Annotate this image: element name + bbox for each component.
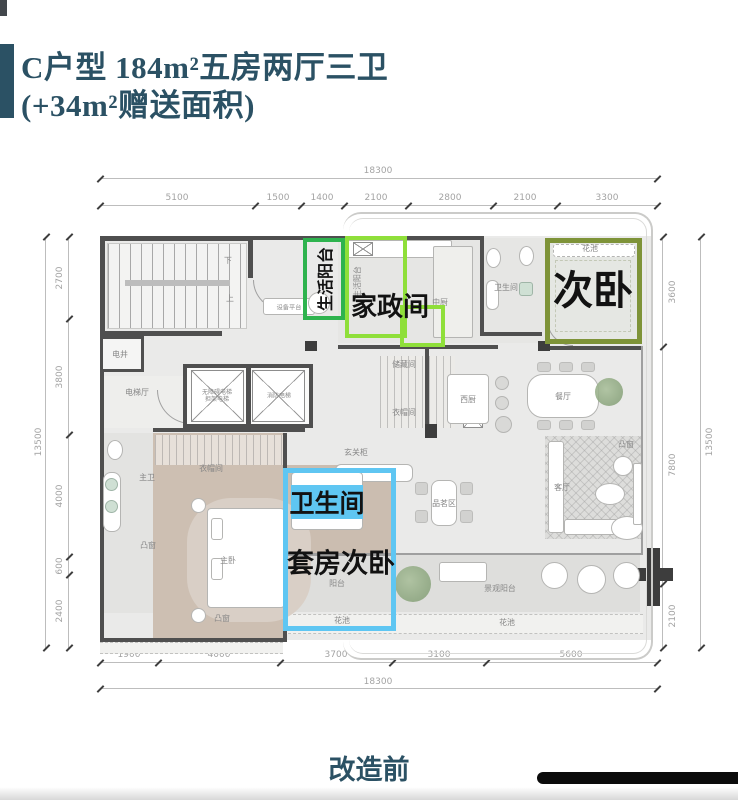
dim-tick [97,202,105,210]
dim-value: 5100 [166,193,189,203]
dim-tick [654,175,662,183]
wall [100,236,252,241]
dim-line-left-segments: 2700 3800 4000 600 2400 [68,237,69,648]
floor-plan: 无障碍电梯 担架电梯 消防电梯 设备平台 [95,228,657,648]
room-label-master-bath: 主卫 [139,471,155,483]
room-label-living-room: 客厅 [554,481,570,493]
room-label-master-closet: 衣帽间 [199,462,223,474]
room-label-electrical-shaft: 电井 [112,348,128,360]
dim-value: 1500 [267,193,290,203]
dim-tick [66,315,74,323]
dim-tick [66,571,74,579]
dim-tick [660,233,668,241]
dim-value: 13500 [34,428,44,457]
dim-tick [341,202,349,210]
annotation-suite-bathroom: 卫生间 [289,484,364,520]
dim-line-bottom-total: 18300 [100,688,657,689]
dim-value: 3700 [325,650,348,660]
dim-line-bottom-segments: 1900 4000 3700 3100 5600 [100,662,657,663]
dim-tick [389,659,397,667]
redaction-bar [537,772,738,784]
room-label-bay-window-bottom: 凸窗 [214,612,230,624]
room-label-west-kitchen: 西厨 [460,393,476,405]
dim-tick [554,202,562,210]
dim-tick [698,644,706,652]
dim-tick [252,202,260,210]
room-label-tea-area: 品茗区 [432,497,456,509]
flower-bed-strip [100,642,283,654]
wall [246,368,251,424]
dim-value: 2100 [514,193,537,203]
room-label-stairs-up: 上 [226,292,234,304]
dim-tick [97,175,105,183]
annotation-housekeeping-room: 家政间 [351,287,429,324]
page-title-line2: (+34m²赠送面积) [21,80,255,125]
dim-tick [654,685,662,693]
room-label-entry-cabinet: 玄关柜 [344,446,368,458]
dim-tick [66,431,74,439]
dim-value: 18300 [364,166,393,176]
dim-value: 2700 [55,267,65,290]
dim-tick [654,202,662,210]
dim-tick [66,644,74,652]
room-label-dining: 餐厅 [555,390,571,402]
annotation-secondary-bedroom: 次卧 [553,258,633,316]
room-label-view-balcony: 景观阳台 [484,582,516,594]
dim-value: 4000 [55,485,65,508]
room-label-storage: 储藏间 [392,358,416,370]
dim-tick [405,202,413,210]
dim-line-right-total: 13500 [700,237,701,648]
dim-tick [483,659,491,667]
equipment-platform-label: 设备平台 [277,302,302,311]
annotation-suite-bedroom: 套房次卧 [287,542,395,581]
title-accent-bar [0,44,14,118]
wall [100,236,105,334]
dim-line-top-segments: 5100 1500 1400 2100 2800 2100 3300 [100,205,657,206]
room-label-master-bedroom: 主卧 [220,554,236,566]
nightstand [191,608,206,623]
room-label-cloakroom: 衣帽间 [392,406,416,418]
page: C户型 184m²五房两厅三卫 (+34m²赠送面积) 18300 5100 1… [0,0,738,800]
dim-value: 13500 [705,428,715,457]
dim-tick [43,233,51,241]
dim-tick [654,659,662,667]
column [305,341,317,351]
dim-tick [660,644,668,652]
elevator-label-line: 担架电梯 [202,396,232,403]
wall [153,428,305,432]
pillow [211,518,223,540]
dim-tick [698,233,706,241]
dim-value: 3800 [55,366,65,389]
dim-tick [97,659,105,667]
elevator-accessible-label: 无障碍电梯 担架电梯 [202,389,232,402]
dim-tick [43,644,51,652]
elevator-label-line: 无障碍电梯 [202,389,232,396]
dim-tick [66,233,74,241]
dim-tick [298,202,306,210]
dim-line-right-segments: 3600 7800 2100 [662,237,663,648]
room-label-bay-window-left: 凸窗 [140,539,156,551]
dim-value: 1400 [311,193,334,203]
master-closet-hatch [155,435,283,465]
dim-line-left-total: 13500 [45,237,46,648]
dim-value: 2100 [668,605,678,628]
room-label-bathroom-top: 卫生间 [494,281,518,293]
dim-tick [155,659,163,667]
dim-tick [660,580,668,588]
dim-value: 2400 [55,600,65,623]
wall [100,638,286,642]
toilet [107,440,123,460]
stair-landing [125,280,230,286]
room-label-flower-bed-bottom: 花池 [499,616,515,628]
dim-value: 600 [55,557,65,574]
sink [105,478,118,491]
dim-value: 3300 [596,193,619,203]
annotation-living-balcony: 生活阳台 [312,247,336,311]
dim-tick [66,553,74,561]
dim-tick [660,343,668,351]
dim-value: 7800 [668,454,678,477]
dim-value: 2800 [439,193,462,203]
room-label-elevator-hall: 电梯厅 [125,386,149,398]
sink [105,500,118,513]
dim-line-top-total: 18300 [100,178,657,179]
wall [248,236,253,278]
corner-artifact [0,0,7,16]
dim-value: 2100 [365,193,388,203]
dim-value: 3600 [668,281,678,304]
dim-tick [277,659,285,667]
dim-value: 18300 [364,677,393,687]
room-label-bay-window-right: 凸窗 [618,438,634,450]
dim-tick [490,202,498,210]
room-label-stairs-down: 下 [224,254,232,266]
dim-tick [97,685,105,693]
elevator-fire-label: 消防电梯 [267,393,291,400]
nightstand [191,498,206,513]
